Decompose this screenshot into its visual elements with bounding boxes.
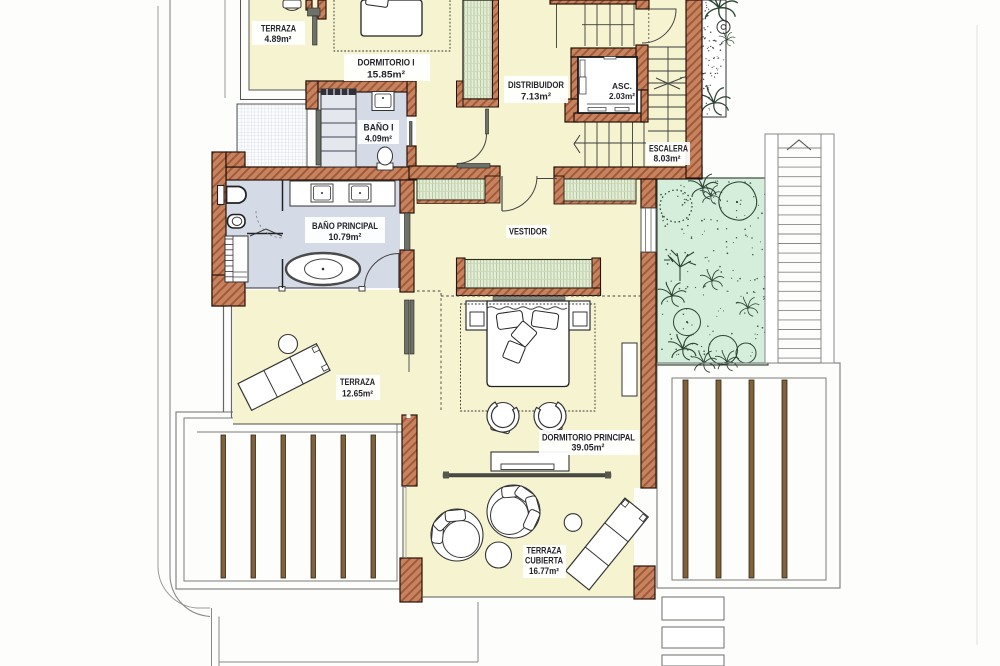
svg-text:ASC.: ASC. (612, 81, 632, 91)
svg-text:DISTRIBUIDOR: DISTRIBUIDOR (508, 80, 564, 91)
svg-text:TERRAZA: TERRAZA (527, 546, 562, 556)
svg-text:4.89m²: 4.89m² (265, 34, 292, 44)
svg-text:16.77m²: 16.77m² (529, 566, 559, 576)
svg-text:39.05m²: 39.05m² (572, 443, 605, 454)
svg-text:TERRAZA: TERRAZA (261, 24, 296, 34)
svg-text:15.85m²: 15.85m² (367, 70, 405, 81)
svg-text:8.03m²: 8.03m² (654, 154, 681, 164)
svg-text:TERRAZA: TERRAZA (340, 377, 375, 387)
svg-text:2.03m²: 2.03m² (609, 91, 635, 101)
svg-text:VESTIDOR: VESTIDOR (509, 227, 547, 237)
svg-text:ESCALERA: ESCALERA (649, 144, 688, 154)
svg-text:4.09m²: 4.09m² (365, 134, 392, 144)
svg-text:10.79m²: 10.79m² (329, 232, 362, 243)
svg-text:DORMITORIO I: DORMITORIO I (358, 58, 415, 68)
svg-text:7.13m²: 7.13m² (521, 92, 551, 103)
svg-text:BAÑO I: BAÑO I (364, 123, 394, 133)
svg-text:BAÑO PRINCIPAL: BAÑO PRINCIPAL (312, 221, 378, 232)
svg-text:12.65m²: 12.65m² (342, 389, 373, 399)
svg-text:CUBIERTA: CUBIERTA (525, 556, 563, 566)
